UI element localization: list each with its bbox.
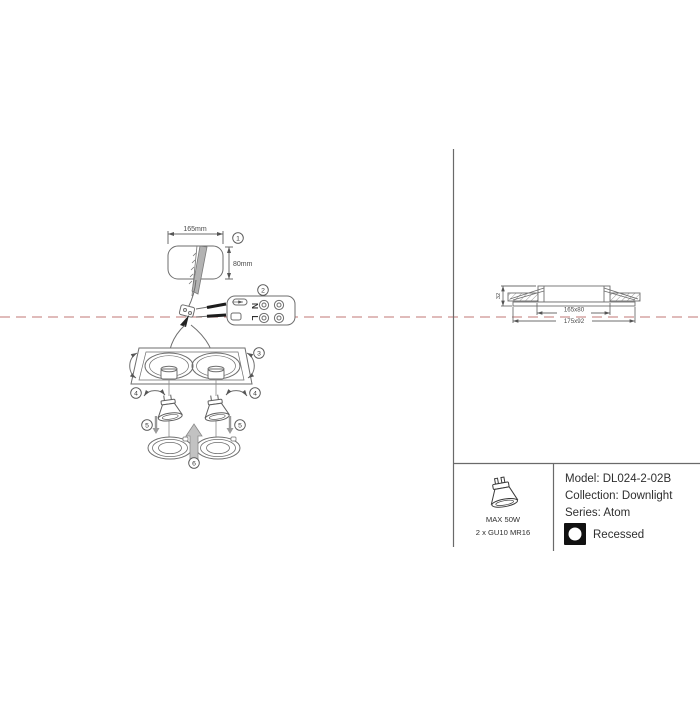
section-cutout-label: 165x80 — [564, 307, 585, 314]
product-info-cell: Model: DL024-2-02B Collection: Downlight… — [564, 473, 673, 545]
fixture-body-section — [538, 286, 610, 302]
step1-cutout-template — [168, 231, 233, 296]
step-5-marker-left: 5 — [145, 423, 149, 430]
datasheet-drawing: 165mm 80mm N L — [0, 0, 700, 700]
step3-fixture-frame — [130, 348, 255, 384]
step6-trim-rings — [148, 424, 240, 459]
datasheet-page: 165mm 80mm N L — [0, 0, 700, 700]
step-3-marker: 3 — [257, 351, 261, 358]
step-2-marker: 2 — [261, 288, 265, 295]
gu10-bulb-left — [155, 393, 182, 422]
step-1-marker: 1 — [236, 236, 240, 243]
step2-terminal-block — [196, 296, 295, 325]
step-6-marker: 6 — [192, 461, 196, 468]
template-width-label: 165mm — [183, 226, 207, 233]
trim-ring-right — [196, 437, 240, 459]
series-label: Series: Atom — [565, 507, 630, 519]
lamp-type-label: 2 x GU10 MR16 — [476, 528, 530, 537]
step4-rotation-arrows — [144, 391, 247, 396]
wire-clamp — [179, 304, 195, 327]
step-5-marker-right: 5 — [238, 423, 242, 430]
step-4-marker-right: 4 — [253, 391, 257, 398]
terminal-l-label: L — [250, 315, 260, 320]
lamp-spec-cell: MAX 50W 2 x GU10 MR16 — [476, 475, 530, 537]
step-4-marker-left: 4 — [134, 391, 138, 398]
dim-height-80mm — [225, 247, 233, 279]
fixture-flange-section — [513, 302, 635, 306]
gu10-lamp-icon — [487, 475, 518, 508]
terminal-n-label: N — [250, 303, 260, 309]
gu10-bulb-right — [202, 393, 229, 422]
section-height-label: 32 — [496, 293, 502, 299]
section-overall-label: 175x92 — [564, 318, 585, 325]
mounting-label: Recessed — [593, 529, 644, 541]
model-label: Model: DL024-2-02B — [565, 473, 671, 485]
max-wattage-label: MAX 50W — [486, 515, 521, 524]
template-height-label: 80mm — [233, 261, 253, 268]
trim-ring-left — [148, 437, 192, 459]
recessed-mount-icon — [564, 523, 586, 545]
collection-label: Collection: Downlight — [565, 490, 673, 502]
